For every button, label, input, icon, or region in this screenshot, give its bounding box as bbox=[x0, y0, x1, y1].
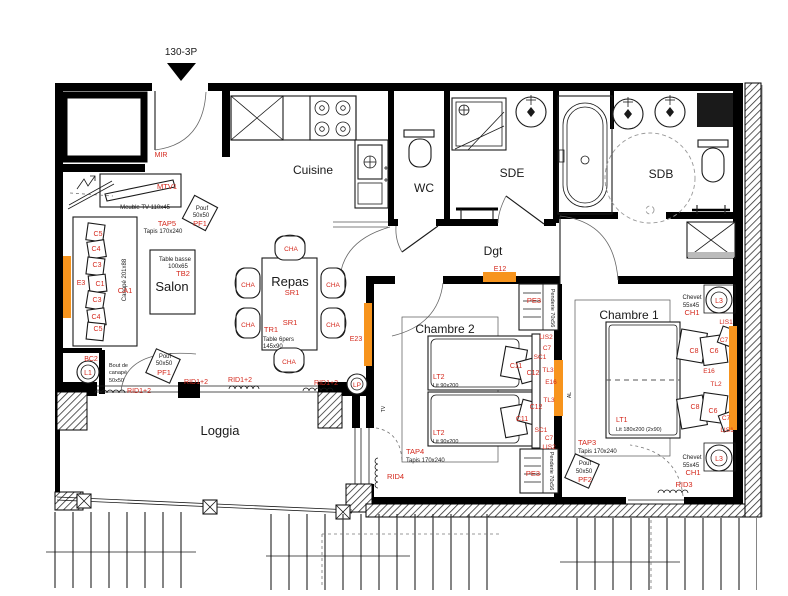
plan-label: CHA bbox=[282, 359, 296, 366]
plan-label: SDE bbox=[500, 166, 525, 180]
plan-label: TR1 bbox=[264, 325, 278, 334]
plan-label: RID1+2 bbox=[314, 380, 338, 387]
plan-label: Penderie 70x56 bbox=[548, 452, 554, 491]
plan-label: E16 bbox=[545, 379, 557, 386]
plan-label: Loggia bbox=[200, 423, 240, 438]
plan-label: C12 bbox=[530, 404, 543, 411]
plan-label: TAP5 bbox=[158, 219, 176, 228]
plan-label: MTV1 bbox=[157, 182, 177, 191]
plan-label: 130-3P bbox=[165, 47, 198, 58]
plan-label: TAP4 bbox=[406, 447, 424, 456]
plan-label: LT2 bbox=[433, 430, 445, 437]
plan-label: C8 bbox=[690, 348, 699, 355]
plan-label: CHA bbox=[326, 322, 340, 329]
plan-label: SC1 bbox=[535, 427, 548, 434]
plan-label: Repas bbox=[271, 274, 309, 289]
plan-label: C7 bbox=[545, 435, 554, 442]
plan-label: C7 bbox=[722, 415, 731, 422]
plan-label: PF2 bbox=[578, 475, 592, 484]
floor-plan: 130-3PCuisineWCSDESDBDgtSalonRepasChambr… bbox=[0, 0, 788, 596]
plan-label: C3 bbox=[93, 297, 102, 304]
plan-label: L1 bbox=[84, 370, 92, 377]
plan-label: Chambre 2 bbox=[415, 322, 475, 336]
plan-label: TL3 bbox=[543, 397, 555, 404]
plan-label: Chambre 1 bbox=[599, 308, 659, 322]
plan-label: C6 bbox=[710, 348, 719, 355]
plan-label: PF1 bbox=[193, 219, 207, 228]
plan-label: CA1 bbox=[118, 286, 133, 295]
plan-label: CHA bbox=[241, 322, 255, 329]
plan-label: 50x50 bbox=[109, 378, 124, 384]
plan-label: SR1 bbox=[283, 318, 298, 327]
plan-label: Meuble TV 110x45 bbox=[120, 205, 170, 211]
plan-label: MIR bbox=[155, 152, 168, 159]
plan-label: C4 bbox=[92, 314, 101, 321]
plan-label: Bout de bbox=[109, 363, 128, 369]
plan-label: C8 bbox=[691, 404, 700, 411]
plan-label: Lit 90x200 bbox=[433, 383, 458, 389]
plan-label: C5 bbox=[94, 231, 103, 238]
plan-label: TV bbox=[381, 405, 387, 412]
plan-label: CH1 bbox=[685, 468, 700, 477]
plan-label: Pouf bbox=[579, 461, 592, 467]
plan-label: Lit 180x200 (2x90) bbox=[616, 427, 662, 433]
duct-block bbox=[697, 93, 733, 127]
plan-label: RID1+2 bbox=[184, 379, 208, 386]
plan-label: C12 bbox=[527, 370, 540, 377]
plan-label: Table 6pers bbox=[263, 337, 294, 343]
plan-label: PF1 bbox=[157, 368, 171, 377]
deck-lines bbox=[46, 512, 757, 590]
plan-label: canapé bbox=[109, 370, 127, 376]
plan-label: Penderie 70x56 bbox=[549, 289, 555, 328]
plan-label: SR1 bbox=[285, 288, 300, 297]
sink-icon bbox=[355, 140, 388, 208]
plan-label: C6 bbox=[709, 408, 718, 415]
plan-label: Tapis 170x240 bbox=[406, 458, 445, 464]
plan-label: C5 bbox=[94, 326, 103, 333]
plan-label: RID1+2 bbox=[228, 377, 252, 384]
plan-label: E16 bbox=[703, 368, 715, 375]
plan-label: SC1 bbox=[534, 354, 547, 361]
plan-label: C7 bbox=[543, 345, 552, 352]
cupboard-icon bbox=[687, 222, 735, 258]
plan-label: TB2 bbox=[176, 269, 190, 278]
plan-label: E12 bbox=[494, 266, 507, 273]
plan-label: C11 bbox=[510, 363, 522, 370]
plan-label: C1 bbox=[96, 281, 105, 288]
plan-label: SDB bbox=[649, 167, 674, 181]
plan-label: LIS1 bbox=[719, 319, 733, 326]
plan-label: LP bbox=[353, 382, 361, 389]
plan-label: C4 bbox=[92, 246, 101, 253]
plan-label: Pouf bbox=[159, 354, 172, 360]
plan-label: E3 bbox=[77, 280, 86, 287]
plan-label: Cuisine bbox=[293, 163, 333, 177]
plan-label: Chevet bbox=[682, 295, 701, 301]
technical-shaft bbox=[64, 95, 144, 159]
plan-label: RID3 bbox=[675, 480, 692, 489]
plan-label: TAP3 bbox=[578, 438, 596, 447]
plan-label: RID4 bbox=[387, 472, 404, 481]
plan-label: TL2 bbox=[710, 381, 722, 388]
plan-label: C11 bbox=[516, 416, 528, 423]
plan-label: PE3 bbox=[527, 296, 541, 305]
plan-label: CHA bbox=[284, 246, 298, 253]
plan-label: LIS1 bbox=[720, 427, 734, 434]
plan-label: LT2 bbox=[433, 374, 445, 381]
plan-label: L3 bbox=[715, 298, 723, 305]
plan-label: Table basse bbox=[159, 257, 192, 263]
plan-label: WC bbox=[414, 181, 434, 195]
plan-label: AL bbox=[567, 392, 573, 398]
plan-label: L3 bbox=[715, 456, 723, 463]
plan-label: C7 bbox=[720, 337, 729, 344]
plan-label: Chevet bbox=[682, 455, 701, 461]
plan-label: Tapis 170x240 bbox=[144, 229, 183, 235]
plan-label: 50x50 bbox=[156, 361, 173, 367]
plan-label: E23 bbox=[350, 336, 363, 343]
plan-label: 145x90 bbox=[263, 344, 283, 350]
plan-label: Lit 90x200 bbox=[433, 439, 458, 445]
plan-label: CHA bbox=[326, 282, 340, 289]
plan-label: CHA bbox=[241, 282, 255, 289]
plan-label: CH1 bbox=[684, 308, 699, 317]
plan-label: LIS2 bbox=[542, 444, 556, 451]
plan-label: Tapis 170x240 bbox=[578, 449, 617, 455]
plan-label: BC2 bbox=[84, 356, 98, 363]
plan-label: Salon bbox=[155, 279, 188, 294]
plan-label: PE3 bbox=[526, 469, 540, 478]
plan-label: LIS2 bbox=[539, 334, 553, 341]
plan-label: LT1 bbox=[616, 417, 628, 424]
plan-label: Pouf bbox=[196, 206, 209, 212]
plan-label: C3 bbox=[93, 262, 102, 269]
plan-label: RID1+2 bbox=[127, 388, 151, 395]
plan-label: Dgt bbox=[484, 244, 503, 258]
plan-label: TL3 bbox=[542, 367, 554, 374]
